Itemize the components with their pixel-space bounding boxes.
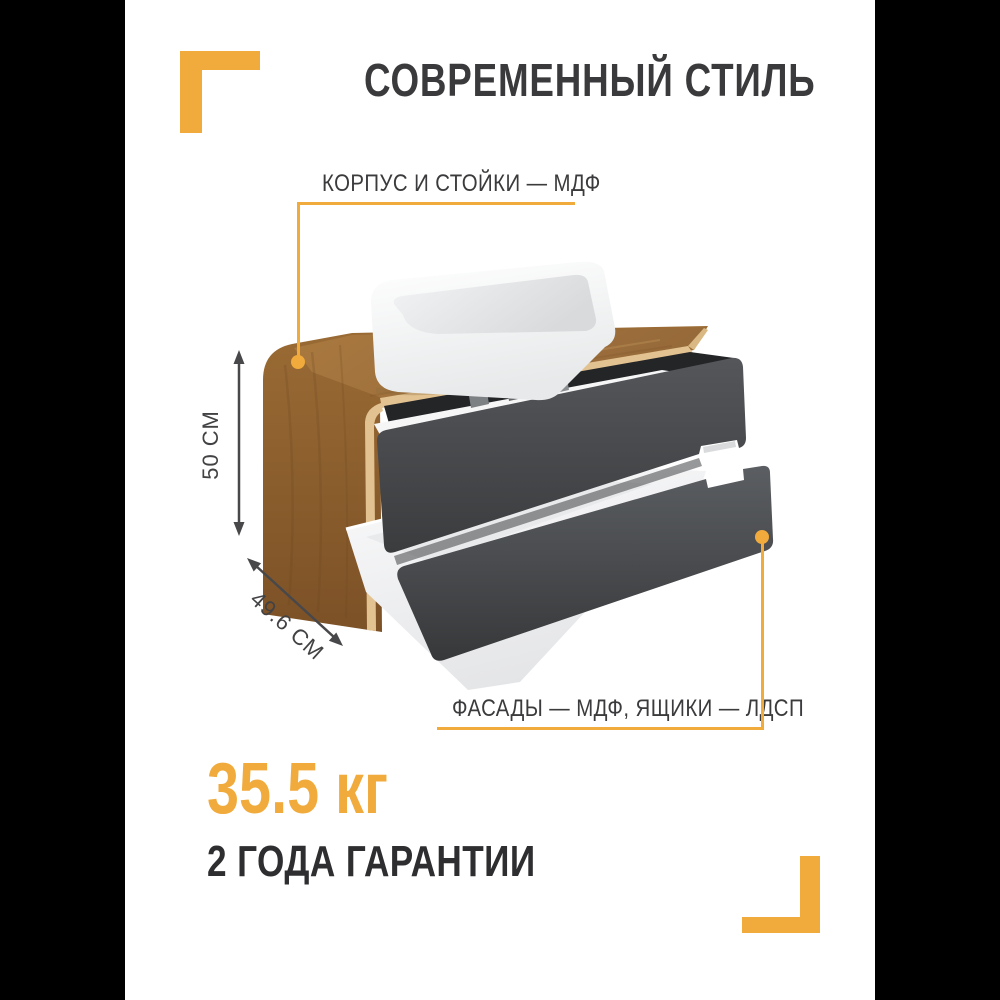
left-black-bar	[0, 0, 125, 1000]
callout-bottom-dot	[755, 530, 769, 544]
callout-bottom-label: ФАСАДЫ — МДФ, ЯЩИКИ — ЛДСП	[452, 697, 804, 721]
warranty-text: 2 ГОДА ГАРАНТИИ	[207, 840, 536, 884]
height-dimension-label: 50 СМ	[200, 410, 222, 480]
weight-value: 35.5 кг	[207, 753, 388, 825]
callout-bottom-line-vertical	[761, 537, 764, 729]
height-arrow	[234, 350, 245, 536]
callout-bottom-line-horizontal	[437, 727, 764, 730]
callout-top-line-vertical	[297, 202, 300, 359]
vanity-cabinet	[263, 262, 773, 690]
callout-top-dot	[291, 355, 305, 369]
product-card: СОВРЕМЕННЫЙ СТИЛЬ	[0, 0, 1000, 1000]
callout-top-line-horizontal	[297, 202, 575, 205]
right-black-bar	[875, 0, 1000, 1000]
content-area: СОВРЕМЕННЫЙ СТИЛЬ	[125, 0, 875, 1000]
callout-top-label: КОРПУС И СТОЙКИ — МДФ	[322, 172, 601, 196]
